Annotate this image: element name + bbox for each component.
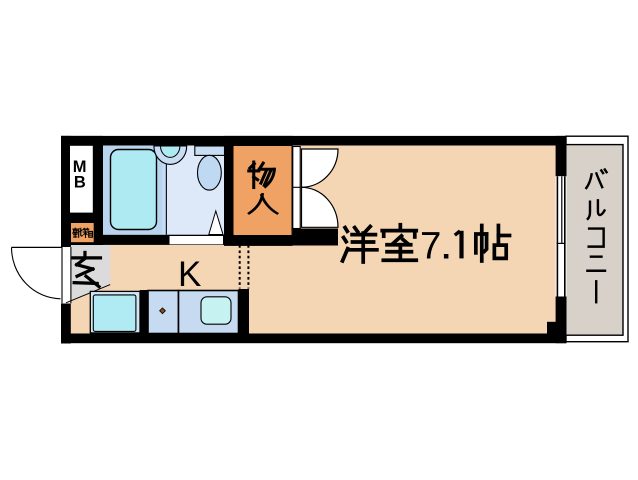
svg-text:B: B: [74, 174, 86, 192]
svg-text:7: 7: [420, 225, 441, 268]
svg-text:K: K: [178, 255, 201, 294]
